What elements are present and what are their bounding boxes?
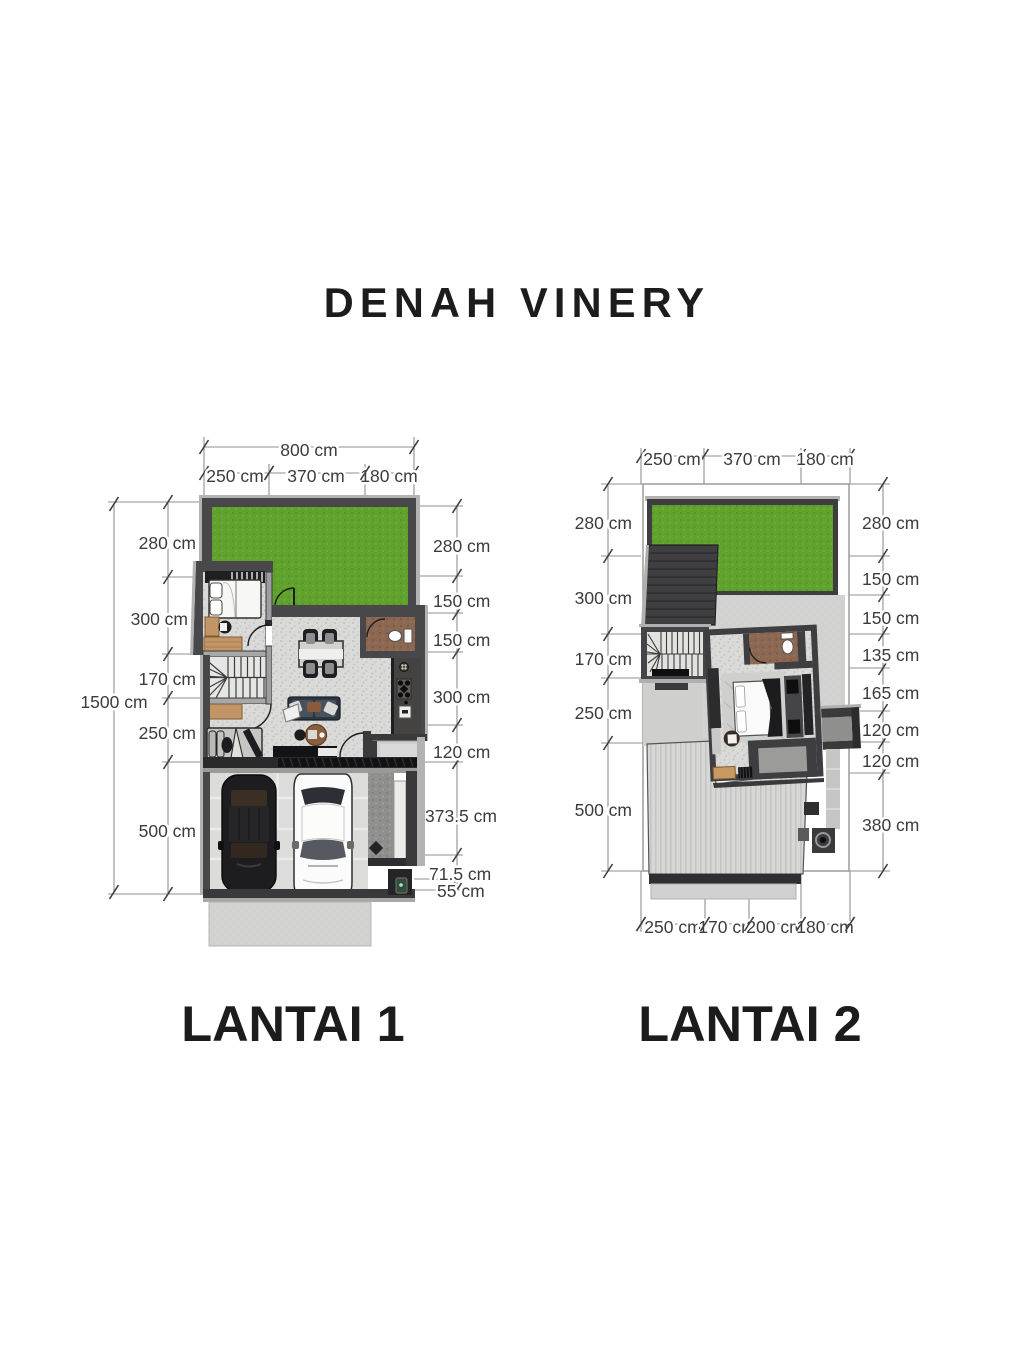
svg-text:135 cm: 135 cm bbox=[862, 645, 919, 665]
svg-text:373.5 cm: 373.5 cm bbox=[425, 806, 497, 826]
svg-text:DENAH VINERY: DENAH VINERY bbox=[324, 279, 710, 326]
svg-text:500 cm: 500 cm bbox=[139, 821, 196, 841]
svg-text:300 cm: 300 cm bbox=[433, 687, 490, 707]
svg-text:120 cm: 120 cm bbox=[862, 720, 919, 740]
svg-text:150 cm: 150 cm bbox=[862, 608, 919, 628]
svg-text:LANTAI 2: LANTAI 2 bbox=[638, 995, 862, 1052]
svg-text:500 cm: 500 cm bbox=[575, 800, 632, 820]
svg-text:180 cm: 180 cm bbox=[796, 917, 853, 937]
svg-text:370 cm: 370 cm bbox=[287, 466, 344, 486]
svg-text:LANTAI 1: LANTAI 1 bbox=[181, 995, 405, 1052]
svg-text:150 cm: 150 cm bbox=[862, 569, 919, 589]
svg-text:250 cm: 250 cm bbox=[644, 917, 701, 937]
svg-text:120 cm: 120 cm bbox=[433, 742, 490, 762]
svg-text:120 cm: 120 cm bbox=[862, 751, 919, 771]
svg-text:370 cm: 370 cm bbox=[723, 449, 780, 469]
svg-text:280 cm: 280 cm bbox=[575, 513, 632, 533]
svg-text:300 cm: 300 cm bbox=[575, 588, 632, 608]
svg-text:250 cm: 250 cm bbox=[139, 723, 196, 743]
svg-text:250 cm: 250 cm bbox=[643, 449, 700, 469]
svg-text:380 cm: 380 cm bbox=[862, 815, 919, 835]
svg-text:55 cm: 55 cm bbox=[437, 881, 485, 901]
svg-text:280 cm: 280 cm bbox=[862, 513, 919, 533]
svg-text:170 cm: 170 cm bbox=[575, 649, 632, 669]
svg-text:800 cm: 800 cm bbox=[280, 440, 337, 460]
svg-text:180 cm: 180 cm bbox=[360, 466, 417, 486]
svg-text:1500 cm: 1500 cm bbox=[80, 692, 147, 712]
svg-text:250 cm: 250 cm bbox=[206, 466, 263, 486]
svg-text:150 cm: 150 cm bbox=[433, 630, 490, 650]
svg-text:250 cm: 250 cm bbox=[575, 703, 632, 723]
svg-text:200 cm: 200 cm bbox=[746, 917, 803, 937]
svg-text:280 cm: 280 cm bbox=[433, 536, 490, 556]
svg-text:165 cm: 165 cm bbox=[862, 683, 919, 703]
svg-text:180 cm: 180 cm bbox=[796, 449, 853, 469]
svg-text:170 cm: 170 cm bbox=[139, 669, 196, 689]
svg-text:280 cm: 280 cm bbox=[139, 533, 196, 553]
svg-text:150 cm: 150 cm bbox=[433, 591, 490, 611]
svg-text:300 cm: 300 cm bbox=[131, 609, 188, 629]
